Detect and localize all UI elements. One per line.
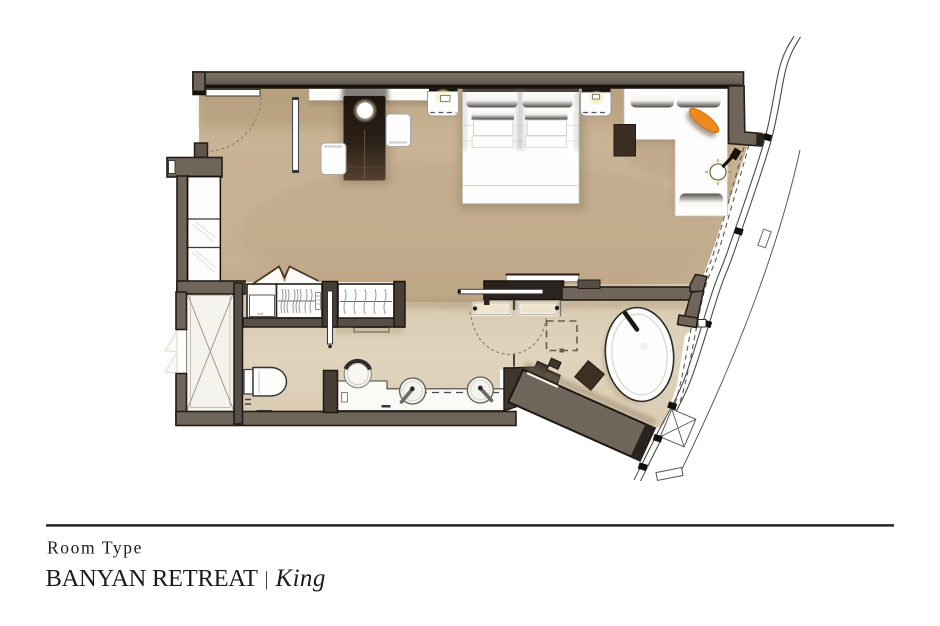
svg-text:|: | — [265, 568, 269, 590]
svg-text:BANYAN RETREAT: BANYAN RETREAT — [46, 565, 259, 592]
svg-text:King: King — [275, 565, 326, 592]
svg-text:safe: safe — [257, 312, 264, 316]
svg-text:Room Type: Room Type — [47, 538, 143, 558]
